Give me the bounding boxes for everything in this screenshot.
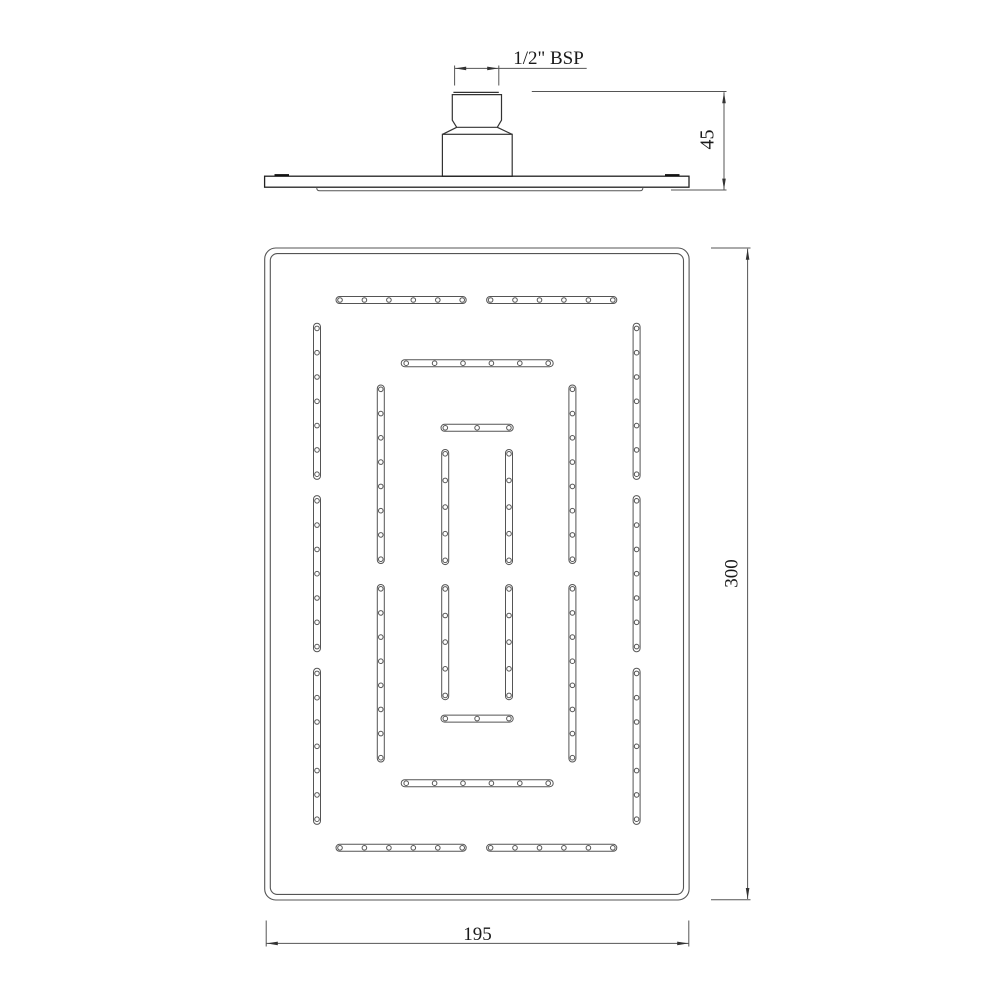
svg-text:300: 300 (722, 559, 743, 588)
svg-text:1/2" BSP: 1/2" BSP (513, 48, 584, 69)
svg-text:195: 195 (463, 924, 492, 945)
svg-text:45: 45 (697, 130, 719, 150)
